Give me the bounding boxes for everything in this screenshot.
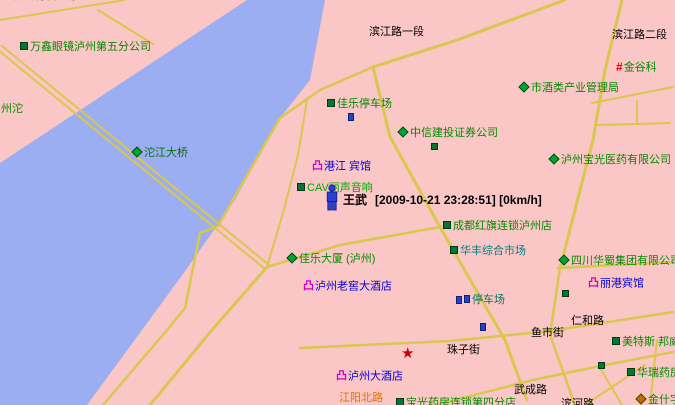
poi-label-text: 宝光药房连锁第四分店 [406, 397, 516, 405]
poi-label-text: 工商银行营业厅 [2, 0, 79, 2]
poi-label: 中信建投证券公司 [399, 127, 498, 140]
poi-label-text: 佳乐停车场 [337, 98, 392, 110]
hotel-icon: 凸 [303, 280, 314, 293]
orange-diamond-icon [635, 393, 646, 404]
poi-label: 华瑞药房 [627, 367, 675, 380]
river-tuojiang [0, 0, 325, 405]
hotel-icon: 凸 [336, 370, 347, 383]
poi-label-text: 丽港宾馆 [600, 277, 644, 289]
diamond-icon [518, 81, 529, 92]
poi-label-text: 四川华蜀集团有限公司 [571, 255, 675, 267]
mini-poi-icon [348, 113, 354, 121]
poi-label: 金什字 [637, 394, 675, 405]
square-icon [443, 221, 451, 229]
poi-label-text: 中信建投证券公司 [410, 127, 498, 139]
hotel-icon: 凸 [588, 277, 599, 290]
poi-label: 市酒类产业管理局 [520, 82, 619, 95]
square-icon [612, 337, 620, 345]
poi-label-text: 美特斯 邦威 [622, 336, 675, 348]
road-label: 滨江路一段 [369, 26, 424, 39]
tracker-status-label[interactable]: 王武[2009-10-21 23:28:51] [0km/h] [343, 191, 542, 208]
poi-label-text: 华丰综合市场 [460, 245, 526, 257]
square-icon [327, 99, 335, 107]
poi-label: 停车场 [464, 294, 505, 307]
poi-label: 凸丽港宾馆 [588, 277, 644, 290]
square-poi-icon [598, 362, 605, 369]
star-icon: ★ [401, 346, 414, 361]
poi-label-text: 沱江大桥 [144, 147, 188, 159]
poi-label-text: 金谷科 [624, 61, 657, 73]
poi-label-text: 华瑞药房 [637, 367, 675, 379]
poi-label: 美特斯 邦威 [612, 336, 675, 349]
road-label: 滨江路二段 [612, 29, 667, 42]
poi-label-text: 万鑫眼镜泸州第五分公司 [30, 41, 151, 53]
poi-label: 华丰综合市场 [450, 245, 526, 258]
road-label: 鱼市街 [531, 327, 564, 340]
road-label: 珠子街 [447, 344, 480, 357]
poi-label: 成都红旗连锁泸州店 [443, 220, 552, 233]
map-canvas[interactable]: 滨江路一段滨江路二段仁和路鱼市街珠子街武成路滨河路江阳北路州沱工商银行营业厅万鑫… [0, 0, 675, 405]
poi-label-text: 泸州大酒店 [348, 370, 403, 382]
square-poi-icon [431, 143, 438, 150]
poi-label-text: 金什字 [648, 394, 675, 405]
poi-label: 佳乐大厦 (泸州) [288, 253, 375, 266]
poi-label-text: 泸州老窖大酒店 [315, 280, 392, 292]
poi-label: 工商银行营业厅 [2, 0, 79, 3]
road-label: 州沱 [1, 103, 23, 116]
square-poi-icon [562, 290, 569, 297]
mini-icon [464, 295, 470, 303]
poi-label: 沱江大桥 [133, 147, 188, 160]
diamond-icon [548, 153, 559, 164]
diamond-icon [558, 254, 569, 265]
poi-label: 泸州宝光医药有限公司 [550, 154, 671, 167]
tracker-name: 王武 [343, 193, 367, 207]
poi-label: #金谷科 [616, 61, 657, 74]
poi-label: 凸泸州大酒店 [336, 370, 403, 383]
hash-icon: # [616, 61, 623, 74]
square-icon [396, 398, 404, 405]
diamond-icon [397, 126, 408, 137]
poi-label: 四川华蜀集团有限公司 [560, 255, 675, 268]
road-label: 江阳北路 [339, 392, 383, 405]
poi-label: 宝光药房连锁第四分店 [396, 397, 516, 405]
road-label: 武成路 [514, 384, 547, 397]
diamond-icon [131, 146, 142, 157]
diamond-icon [286, 252, 297, 263]
poi-label-text: 成都红旗连锁泸州店 [453, 220, 552, 232]
tracked-person-icon[interactable] [325, 184, 339, 211]
square-icon [450, 246, 458, 254]
poi-label-text: 港江 宾馆 [324, 160, 371, 172]
poi-label: 凸港江 宾馆 [312, 160, 371, 173]
poi-label: 佳乐停车场 [327, 98, 392, 111]
poi-label: 万鑫眼镜泸州第五分公司 [20, 41, 151, 54]
square-icon [20, 42, 28, 50]
road-label: 仁和路 [571, 315, 604, 328]
square-icon [627, 368, 635, 376]
poi-label-text: 市酒类产业管理局 [531, 82, 619, 94]
poi-label-text: 停车场 [472, 294, 505, 306]
hotel-icon: 凸 [312, 160, 323, 173]
poi-label-text: 佳乐大厦 (泸州) [299, 253, 375, 265]
poi-label: 凸泸州老窖大酒店 [303, 280, 392, 293]
road-label: 滨河路 [561, 398, 594, 405]
poi-label-text: 泸州宝光医药有限公司 [561, 154, 671, 166]
tracker-time-speed: [2009-10-21 23:28:51] [0km/h] [375, 193, 542, 207]
mini-poi-icon [456, 296, 462, 304]
square-icon [297, 183, 305, 191]
mini-poi-icon [480, 323, 486, 331]
